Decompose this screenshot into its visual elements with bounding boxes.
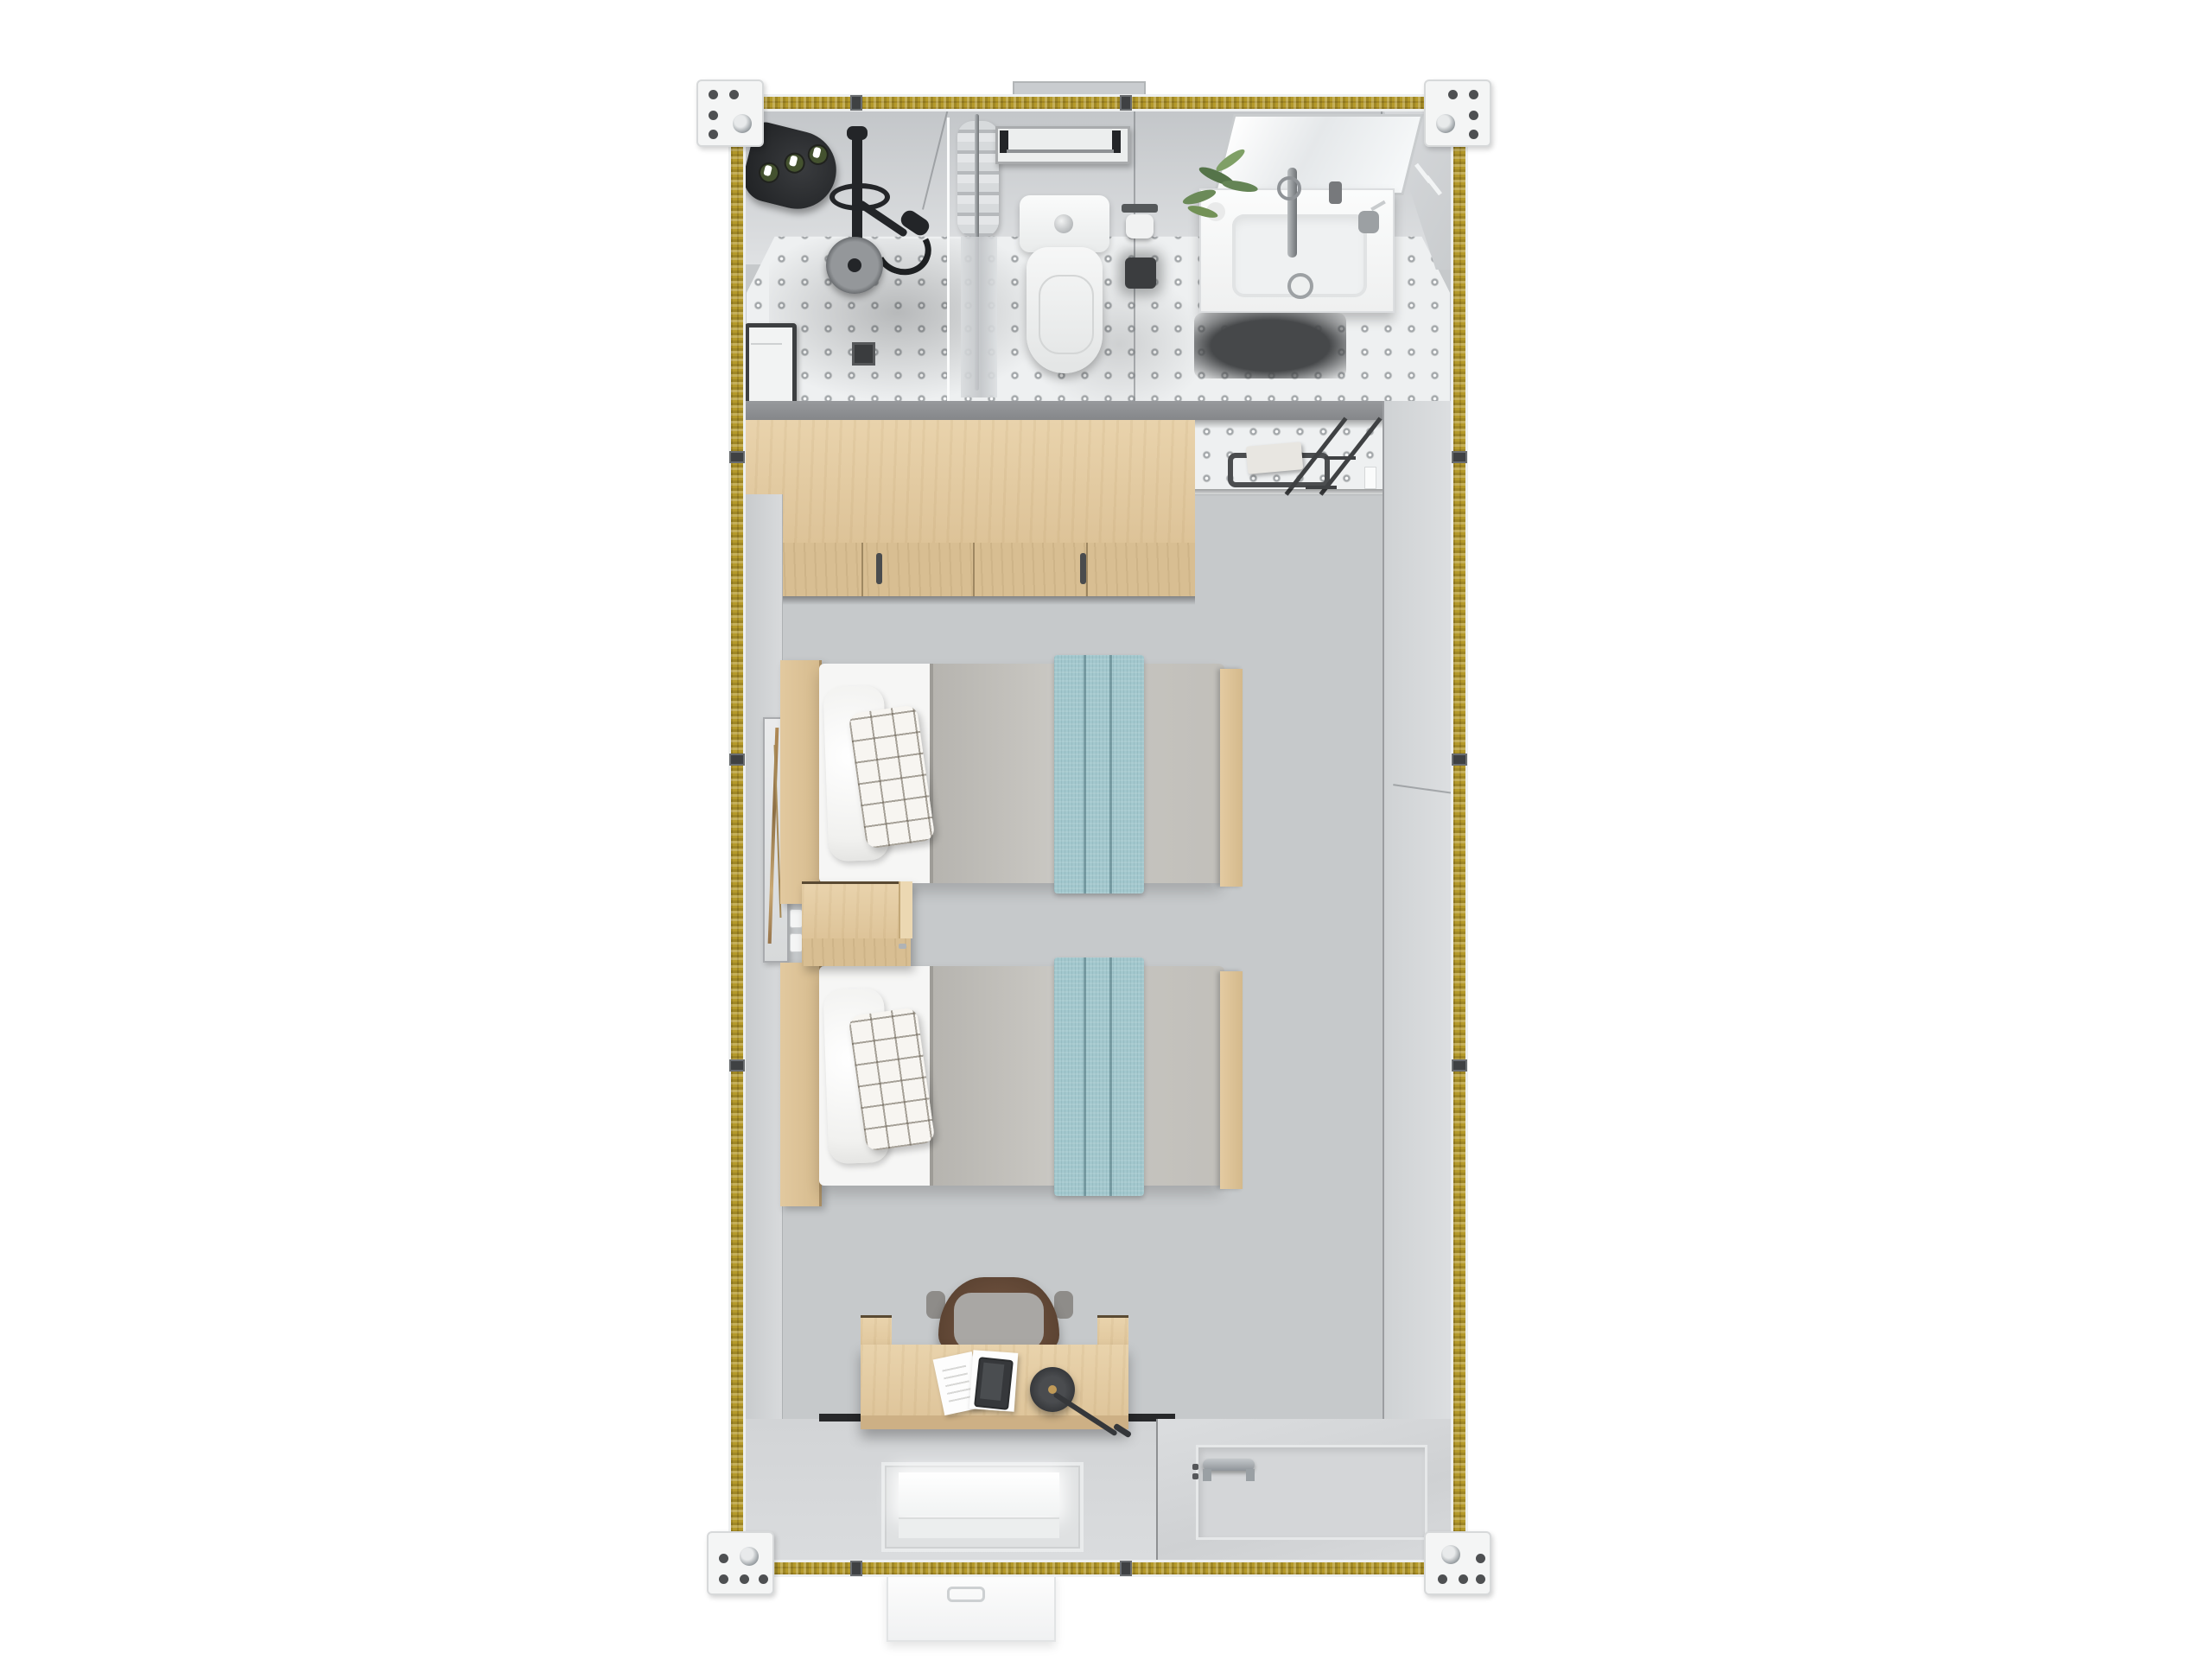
bed-footboard	[1220, 669, 1243, 887]
vent-slash	[1425, 175, 1442, 196]
desk	[861, 1315, 1128, 1443]
tp-bracket	[1122, 204, 1158, 213]
corner-casting-bottom-right	[1424, 1531, 1491, 1595]
render-canvas	[0, 0, 2212, 1660]
sink-drain	[1287, 273, 1313, 299]
entry-towel	[1246, 442, 1304, 474]
shower-post-cap	[847, 126, 868, 140]
bed-blanket-teal	[1054, 655, 1144, 894]
window-sill	[899, 1517, 1059, 1538]
bathroom-divider-seam	[1134, 109, 1135, 401]
outlet-segment	[790, 933, 803, 952]
floor-drain	[852, 342, 875, 366]
wardrobe-door-seam	[861, 543, 863, 596]
tablet-screen	[980, 1363, 1004, 1401]
page-lines	[942, 1364, 973, 1402]
corner-casting-bottom-left	[707, 1531, 774, 1595]
bed-mattress	[819, 664, 1221, 883]
rack-rail	[1007, 149, 1114, 153]
panel-joint	[850, 1561, 862, 1576]
nightstand-side	[899, 881, 912, 938]
bed-blanket-teal	[1054, 957, 1144, 1196]
step-handle	[947, 1587, 985, 1602]
panel-joint	[729, 1059, 745, 1072]
toilet-seat-line	[1039, 275, 1094, 354]
bed-headboard	[780, 963, 822, 1206]
entry-top-shadow	[1195, 420, 1383, 429]
tp-holder	[1122, 204, 1160, 252]
blanket-fold	[1109, 655, 1112, 894]
curtain-lower-panel	[961, 237, 997, 398]
bath-entry-floor	[1195, 420, 1383, 494]
soap-dispenser	[1329, 181, 1342, 204]
bed-mattress	[819, 966, 1221, 1186]
toothbrush-cup	[1358, 211, 1379, 233]
blanket-fold	[1084, 957, 1086, 1196]
blanket-fold	[1084, 655, 1086, 894]
wall-panel-left	[731, 97, 743, 1574]
panel-joint	[1120, 1561, 1132, 1576]
toilet	[1018, 195, 1113, 377]
panel-joint	[729, 451, 745, 463]
rain-shower-head	[826, 237, 883, 294]
wardrobe-handle	[876, 553, 882, 584]
outlet-segment	[790, 909, 803, 928]
glass-door-stub	[1325, 456, 1356, 460]
bed-footboard	[1220, 971, 1243, 1189]
wall-panel-right	[1453, 97, 1465, 1574]
corner-casting-top-right	[1424, 80, 1491, 147]
panel-joint	[1120, 95, 1132, 111]
lamp-arm	[1052, 1391, 1117, 1436]
wardrobe-base-shadow	[743, 596, 1195, 605]
door-handle-stub	[1246, 1469, 1255, 1481]
panel-joint	[1452, 754, 1467, 766]
wardrobe-door-seam	[973, 543, 975, 596]
window	[881, 1462, 1084, 1552]
door-handle-stub	[1203, 1469, 1211, 1481]
flush-button	[1054, 214, 1073, 233]
right-wall-face	[1382, 401, 1455, 1419]
nightstand-top	[802, 881, 911, 941]
wardrobe-top	[743, 420, 1195, 543]
panel-joint	[729, 754, 745, 766]
interior	[743, 109, 1453, 1562]
wardrobe-door-seam	[1086, 543, 1088, 596]
tp-roll	[1126, 214, 1154, 239]
wardrobe-handle	[1080, 553, 1086, 584]
toothbrush	[1370, 200, 1386, 211]
leaf	[1214, 146, 1248, 174]
leaf	[1221, 178, 1258, 194]
door-hinge-dot	[1192, 1464, 1198, 1470]
bed-1	[780, 660, 1243, 906]
nightstand	[802, 881, 911, 966]
basket-lid-line	[751, 343, 782, 345]
wall-panel-bottom	[741, 1562, 1453, 1574]
towel-rack	[995, 126, 1130, 164]
exterior-entry-step	[887, 1573, 1056, 1642]
corner-casting-top-left	[696, 80, 764, 147]
wardrobe-front	[743, 543, 1195, 596]
panel-joint	[1452, 1059, 1467, 1072]
toilet-brush	[1125, 258, 1156, 289]
faucet-handle	[1277, 176, 1301, 200]
door-hinge-dot	[1192, 1473, 1198, 1479]
entry-bottom-shadow	[1195, 489, 1383, 496]
bed-2	[780, 963, 1243, 1208]
tablet	[974, 1357, 1014, 1410]
plant	[1175, 150, 1262, 228]
wall-switch	[1364, 467, 1376, 489]
panel-joint	[1452, 451, 1467, 463]
panel-joint	[850, 95, 862, 111]
rain-head-hub	[848, 258, 861, 272]
bed-headboard	[780, 660, 822, 904]
wall-panel-top	[741, 97, 1453, 109]
entry-door	[1156, 1419, 1455, 1562]
vanity-mat	[1194, 313, 1346, 378]
nightstand-front	[802, 938, 911, 966]
nightstand-handle	[899, 944, 906, 949]
desk-lamp	[1030, 1345, 1134, 1440]
glass-edge	[947, 118, 950, 403]
window-glass	[899, 1472, 1059, 1516]
wall-seam	[1393, 784, 1453, 794]
blanket-fold	[1109, 957, 1112, 1196]
